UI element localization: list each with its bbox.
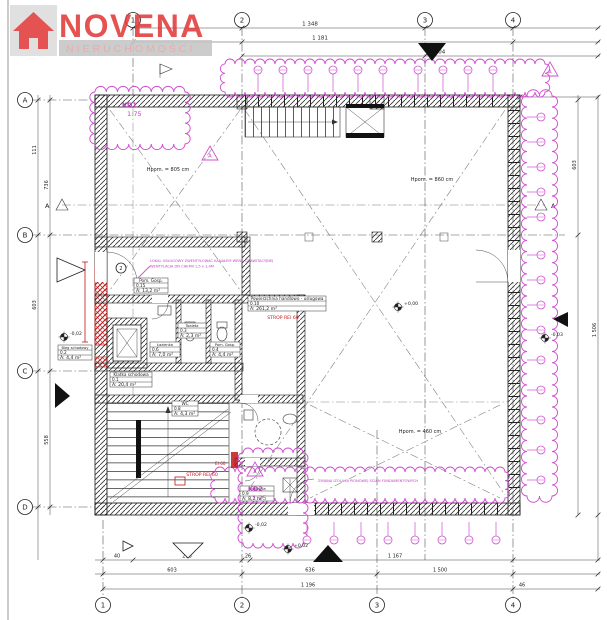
revision-markers-top: [254, 66, 497, 92]
section-marker-left-icon: [56, 199, 68, 210]
door-number-bubble: 2: [119, 266, 122, 272]
section-label-left: A: [45, 202, 50, 210]
room-area: A: 4,4 m²: [212, 352, 233, 358]
room-area: A: 4,4 m²: [60, 355, 81, 361]
wall-interior: [297, 295, 305, 515]
room-number: 0.8: [174, 406, 181, 411]
elevator: [107, 318, 147, 368]
note-top-line2: WENTYLACJA DN CHEMII 1,5 x 1,4M: [150, 265, 214, 269]
dim-bottom-3b: 46: [519, 583, 525, 589]
grid-bubble-top-4: 4: [511, 17, 516, 25]
entrance-arrow-bottom-icon: [313, 545, 343, 562]
room-number: 0.15: [136, 283, 146, 288]
strop-label-1: STROP REI 60: [267, 315, 299, 321]
room-area: A: 4,3 m²: [174, 411, 195, 417]
room-number: 0.1: [112, 377, 119, 382]
detail-callout-kd2: KD2: [248, 485, 263, 493]
room-number: 0.4: [212, 347, 219, 352]
room-label-staircase: Klatka schodowa 0.1 A: 20,4 m²: [110, 372, 152, 388]
revision-triangle-1: A: [208, 154, 212, 160]
room-label-flight: Bieg schodowy 0.2 A: 4,4 m²: [58, 345, 92, 361]
level-plus-b: +0,02: [294, 543, 308, 549]
main-staircase: [107, 403, 231, 503]
dim-top-2: 1 181: [312, 36, 328, 42]
wheelchair-turning-circle: [255, 419, 281, 445]
section-line-A: A A: [45, 199, 556, 210]
dim-left-4: 558: [44, 435, 50, 445]
grid-bubble-bottom-2: 2: [240, 602, 244, 610]
revision-triangle-2: A: [548, 70, 552, 76]
level-minus-a: -0,02: [70, 331, 82, 337]
room-label-wc: WC 0.8 A: 4,3 m²: [172, 401, 198, 417]
grid-bubbles-bottom: 1 2 3 4: [96, 598, 521, 613]
detail-callout-kd1-scale: 1:75: [127, 110, 142, 118]
note-top-line1: LOKAL USŁUGOWY ZWENTYLOWAĆ KANAŁEM WENT.…: [150, 258, 273, 263]
room-area: A: 261,2 m²: [250, 306, 277, 312]
door-symbol-triangle: [57, 258, 85, 282]
room-area: A: 2,3 m²: [180, 333, 201, 339]
strop-label-2: STROP REI 60: [186, 472, 218, 478]
top-staircase: [245, 104, 384, 138]
revision-triangles: A A A: [202, 62, 558, 476]
logo-brand: NOVENA: [59, 8, 205, 44]
dim-bottom-1d: 1 167: [388, 554, 402, 560]
toilet-icon: [217, 327, 227, 341]
dim-left-2: 736: [44, 180, 50, 190]
grid-bubble-bottom-1: 1: [101, 602, 105, 610]
room-label-storage1: Pom. Gosp. 0.15 A: 13,2 m²: [134, 278, 168, 294]
revision-markers-right: [527, 113, 545, 484]
grid-bubble-bottom-4: 4: [511, 602, 516, 610]
grid-bubble-top-2: 2: [240, 17, 244, 25]
room-name: Powierzchnia handlowo - usługowa: [250, 296, 323, 301]
dim-right-1: 603: [572, 160, 578, 170]
dim-bottom-2a: 603: [167, 568, 177, 574]
flag-marker-icon: [160, 64, 172, 74]
door-symbol-triangle: [123, 541, 133, 551]
wall-interior: [95, 237, 245, 247]
grid-bubble-left-D: D: [22, 504, 27, 512]
ceiling-height-1: Hpom. = 805 cm: [147, 167, 190, 173]
sink-icon: [244, 410, 253, 420]
logo-tagline: NIERUCHOMOŚCI: [66, 42, 195, 55]
room-label-bathroom: Łazienka 0.6 A: 7,0 m²: [150, 342, 180, 358]
toilet-icon: [283, 414, 297, 424]
wall-interior: [242, 237, 250, 295]
ei-label: EI 60: [215, 461, 226, 466]
entrance-arrow-right-icon: [553, 312, 568, 327]
section-marker-right-icon: [535, 199, 547, 210]
door-symbol-triangle: [173, 543, 203, 558]
room-area: A: 20,4 m²: [112, 382, 136, 388]
revision-cloud-right: [521, 90, 557, 503]
room-area: A: 13,2 m²: [136, 288, 160, 294]
room-number: 0.2: [60, 350, 67, 355]
level-minus-b: -0,02: [255, 522, 267, 528]
detail-callout-kd1: KD1: [122, 101, 137, 109]
room-name: Klatka schodowa: [113, 372, 149, 377]
dim-bottom-2b: 636: [305, 568, 315, 574]
dim-bottom-1a: 40: [114, 554, 120, 560]
dim-right-2: 1 506: [592, 323, 598, 337]
room-label-storage2: Pom. Gosp. 0.4 A: 4,4 m²: [210, 342, 240, 358]
room-number: 0.3: [180, 328, 187, 333]
dim-bottom-3a: 1 196: [301, 583, 315, 589]
note-bottom: ZMIANA IZOLACJI PIONOWEJ ŚCIAN FUNDAMENT…: [318, 478, 418, 483]
ceiling-height-2: Hpom. = 860 cm: [411, 177, 454, 183]
entrance-arrow-left-icon: [55, 383, 70, 408]
revision-markers-bottom: [303, 522, 500, 544]
room-number: 0.6: [152, 347, 159, 352]
room-name: WC: [181, 401, 188, 406]
novena-logo: NOVENA NIERUCHOMOŚCI: [10, 5, 212, 56]
room-label-toilet: Toaleta 0.3 A: 2,3 m²: [178, 323, 206, 339]
grid-bubble-bottom-3: 3: [375, 602, 379, 610]
dim-left-1: 111: [32, 145, 38, 155]
floor-plan-drawing: A A 1 2 3 4 1 2 3 4 A B C D: [0, 0, 607, 620]
column: [372, 232, 382, 242]
dim-top-1: 1 348: [302, 22, 318, 28]
room-number: 0.10: [250, 301, 260, 306]
sink-icon: [158, 306, 171, 315]
detail-callout-kd2-scale: 1:25: [252, 494, 267, 502]
revision-triangle-3: A: [253, 470, 257, 476]
room-area: A: 7,0 m²: [152, 352, 173, 358]
dim-left-3: 603: [32, 300, 38, 310]
revision-cloud-top: [220, 59, 549, 97]
grid-bubble-left-A: A: [23, 97, 28, 105]
dim-bottom-1c: 26: [245, 554, 251, 560]
room-label-retail: Powierzchnia handlowo - usługowa 0.10 A:…: [248, 296, 326, 312]
grid-bubbles-left: A B C D: [18, 93, 33, 515]
wall-interior: [95, 395, 303, 403]
grid-bubble-left-C: C: [23, 368, 28, 376]
grid-bubble-left-B: B: [23, 232, 28, 240]
level-minus-c: -0,03: [551, 332, 563, 338]
stair-handrail: [136, 420, 141, 478]
floor-plan-page: A A 1 2 3 4 1 2 3 4 A B C D: [0, 0, 607, 620]
dim-bottom-2c: 1 500: [433, 568, 447, 574]
ceiling-height-3: Hpom. = 460 cm: [399, 429, 442, 435]
level-plus-zero: +0,00: [404, 301, 418, 307]
grid-bubble-top-3: 3: [423, 17, 427, 25]
